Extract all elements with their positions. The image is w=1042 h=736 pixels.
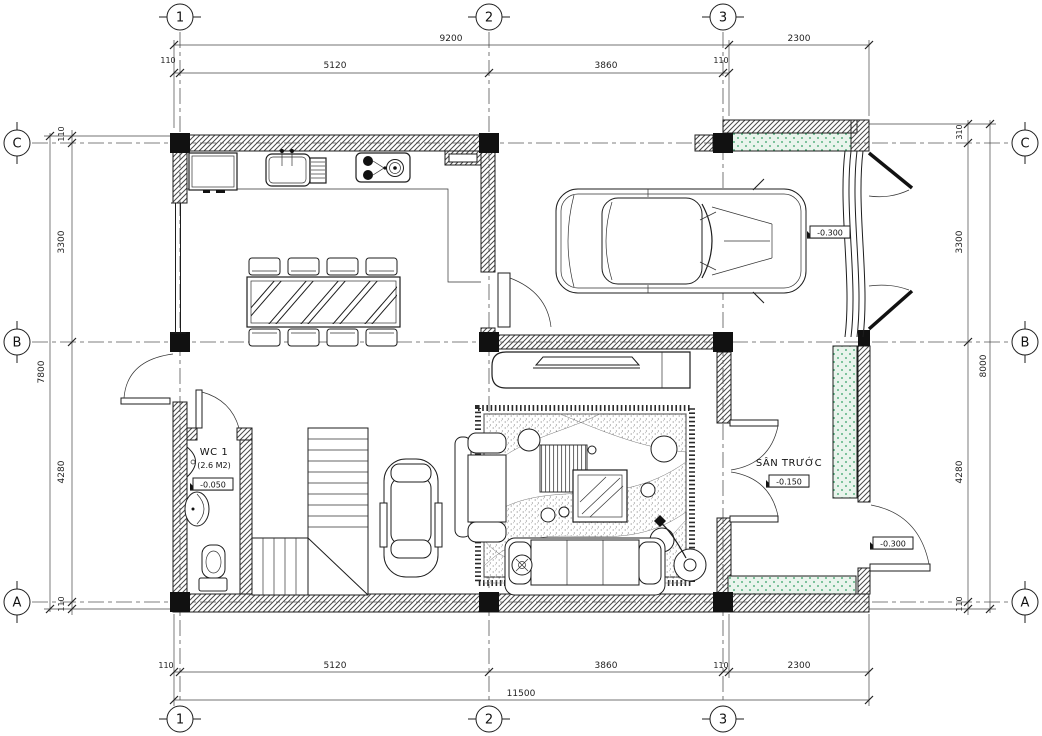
wc-corner-sink — [187, 447, 196, 477]
kitchen-sink — [266, 149, 326, 186]
dim-right-4280: 4280 — [955, 460, 965, 483]
stove — [356, 153, 410, 182]
gate-level-label: -0.300 — [880, 540, 906, 549]
wc-toilet — [199, 545, 227, 591]
grid-bubble-A-left: A — [13, 596, 22, 611]
dim-right-3300: 3300 — [955, 230, 965, 253]
wc-area-label: (2.6 M2) — [197, 461, 231, 470]
dim-left-3300: 3300 — [57, 230, 67, 253]
sofa-plant — [512, 555, 532, 575]
tv-console — [492, 352, 690, 388]
dim-left-110-bottom: 110 — [57, 596, 66, 611]
grid-bubble-2-bottom: 2 — [485, 713, 493, 728]
grid-bubble-3-bottom: 3 — [719, 713, 727, 728]
dim-top-3860: 3860 — [595, 61, 618, 71]
wc-basin — [185, 492, 209, 526]
dim-top-5120: 5120 — [324, 61, 347, 71]
dim-bottom-110-left: 110 — [158, 661, 173, 670]
grid-bubble-B-right: B — [1021, 336, 1030, 351]
level-marker-gate: -0.300 — [870, 537, 913, 549]
wc-room: WC 1 (2.6 M2) -0.050 — [185, 447, 233, 591]
dim-top-9200: 9200 — [440, 34, 463, 44]
dim-top-2300: 2300 — [788, 34, 811, 44]
garage-interior-door — [498, 273, 551, 327]
front-yard-label: SÂN TRƯỚC — [756, 456, 822, 469]
grid-bubble-B-left: B — [13, 336, 22, 351]
garage-rolling-door — [843, 151, 865, 337]
tv — [536, 357, 639, 365]
garage: -0.300 — [556, 151, 912, 337]
dim-right-110: 110 — [955, 596, 964, 611]
armchair — [455, 433, 506, 542]
yard-level-label: -0.150 — [776, 478, 802, 487]
car-mirror-bottom — [753, 292, 764, 303]
entrance-double-door — [730, 420, 778, 522]
living-room — [380, 352, 706, 595]
wc-door — [196, 390, 239, 428]
grid-bubble-A-right: A — [1021, 596, 1030, 611]
lounge-chair — [380, 459, 442, 577]
yard-green-right — [833, 346, 857, 498]
dim-right-310: 310 — [955, 124, 964, 139]
dim-right-8000: 8000 — [979, 354, 989, 377]
car-mirror-top — [753, 179, 764, 190]
grid-bubble-1-bottom: 1 — [176, 713, 184, 728]
dim-top-110-right: 110 — [713, 56, 728, 65]
yard-green-bottom — [728, 576, 856, 594]
wc-room-label: WC 1 — [200, 447, 228, 458]
grid-bubble-1-top: 1 — [176, 11, 184, 26]
dim-bottom-110-right: 110 — [713, 661, 728, 670]
grid-bubble-3-top: 3 — [719, 11, 727, 26]
dim-bottom-5120: 5120 — [324, 661, 347, 671]
stairs — [252, 428, 368, 595]
level-marker-garage: -0.300 — [807, 226, 850, 238]
dim-left-4280: 4280 — [57, 460, 67, 483]
garage-level-label: -0.300 — [817, 229, 843, 238]
floor-plan-drawing: 9200 2300 110 5120 3860 110 110 5120 386… — [0, 0, 1042, 736]
dining-set — [230, 258, 417, 346]
grid-bubble-2-top: 2 — [485, 11, 493, 26]
wc-level-label: -0.050 — [200, 481, 226, 490]
car-top-view — [556, 179, 806, 303]
dim-bottom-3860: 3860 — [595, 661, 618, 671]
fridge — [189, 153, 237, 193]
grid-bubble-C-left: C — [12, 137, 21, 152]
level-marker-yard: -0.150 — [766, 475, 809, 487]
level-marker-wc: -0.050 — [190, 478, 233, 490]
canopy-strip — [727, 133, 851, 151]
grid-bubble-C-right: C — [1020, 137, 1029, 152]
dim-bottom-2300: 2300 — [788, 661, 811, 671]
dim-left-7800: 7800 — [37, 360, 47, 383]
coffee-table — [573, 470, 627, 522]
dim-bottom-11500: 11500 — [507, 689, 536, 699]
garage-swing-gates — [869, 153, 912, 329]
dim-left-110-top: 110 — [57, 126, 66, 141]
dim-top-110-left: 110 — [160, 56, 175, 65]
side-door — [121, 354, 173, 404]
window-left — [171, 203, 186, 333]
floor-plan-canvas: 9200 2300 110 5120 3860 110 110 5120 386… — [0, 0, 1042, 736]
dining-table — [230, 272, 417, 332]
